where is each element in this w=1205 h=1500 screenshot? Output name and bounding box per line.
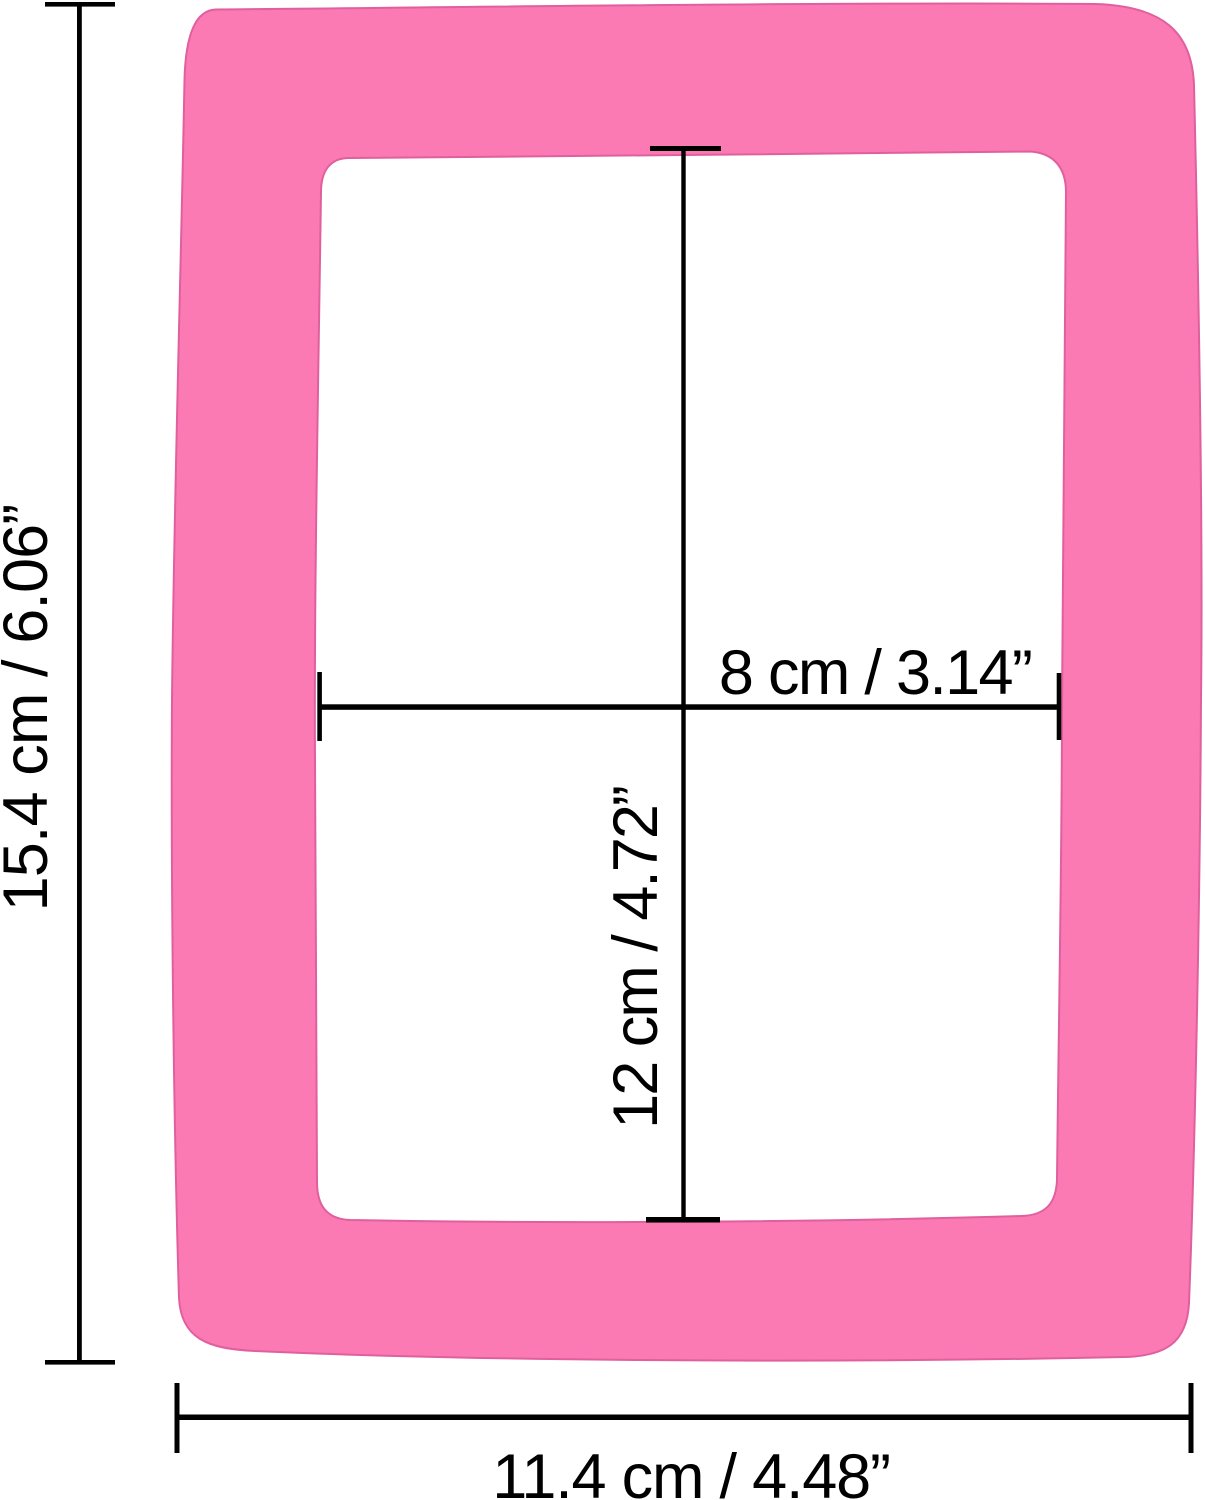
- svg-text:11.4 cm / 4.48”: 11.4 cm / 4.48”: [492, 1442, 890, 1500]
- svg-text:8 cm / 3.14”: 8 cm / 3.14”: [719, 638, 1031, 708]
- svg-text:12 cm / 4.72”: 12 cm / 4.72”: [601, 787, 671, 1129]
- svg-text:15.4 cm / 6.06”: 15.4 cm / 6.06”: [0, 505, 61, 912]
